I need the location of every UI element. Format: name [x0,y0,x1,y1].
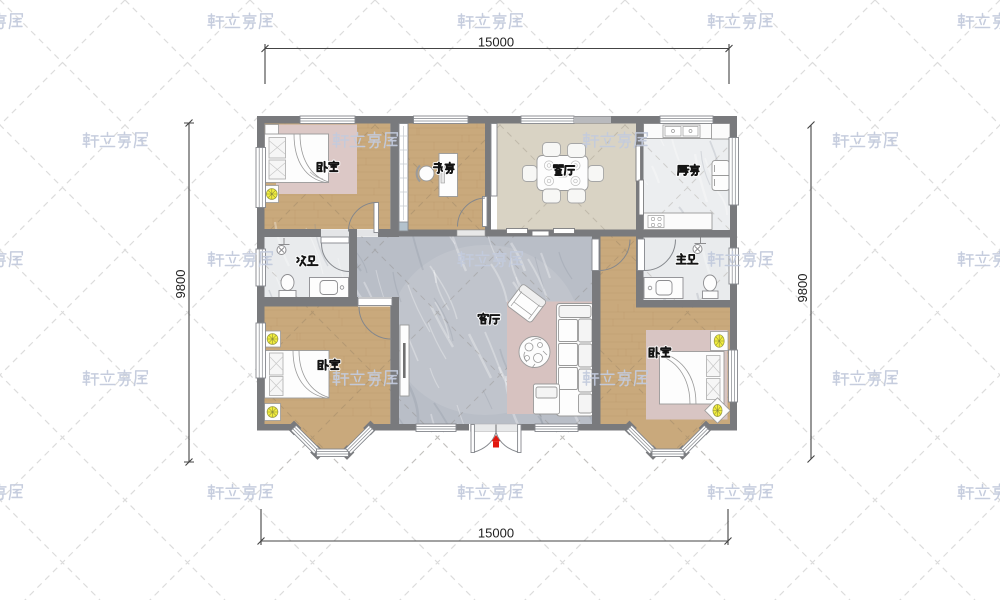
svg-text:9800: 9800 [795,274,810,303]
svg-text:9800: 9800 [173,270,188,299]
svg-text:15000: 15000 [478,35,514,50]
svg-text:15000: 15000 [478,526,514,541]
